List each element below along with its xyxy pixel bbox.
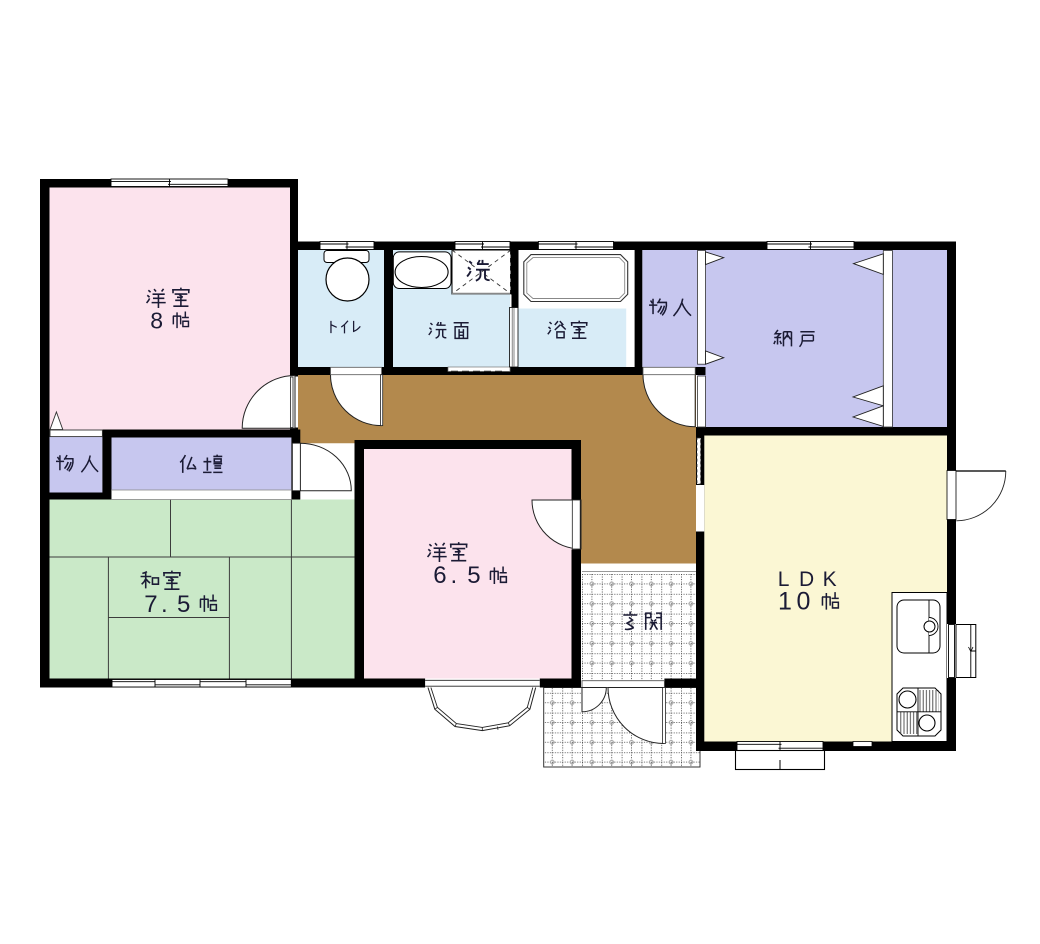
svg-text:K: K <box>823 568 837 591</box>
svg-text:.: . <box>451 562 458 589</box>
svg-text:0: 0 <box>797 587 811 615</box>
svg-text:6: 6 <box>433 562 446 589</box>
svg-text:8: 8 <box>150 307 163 333</box>
svg-text:5: 5 <box>467 562 480 589</box>
svg-text:1: 1 <box>778 587 792 615</box>
svg-text:.: . <box>161 591 168 618</box>
svg-text:5: 5 <box>177 591 190 618</box>
svg-text:7: 7 <box>144 591 157 618</box>
